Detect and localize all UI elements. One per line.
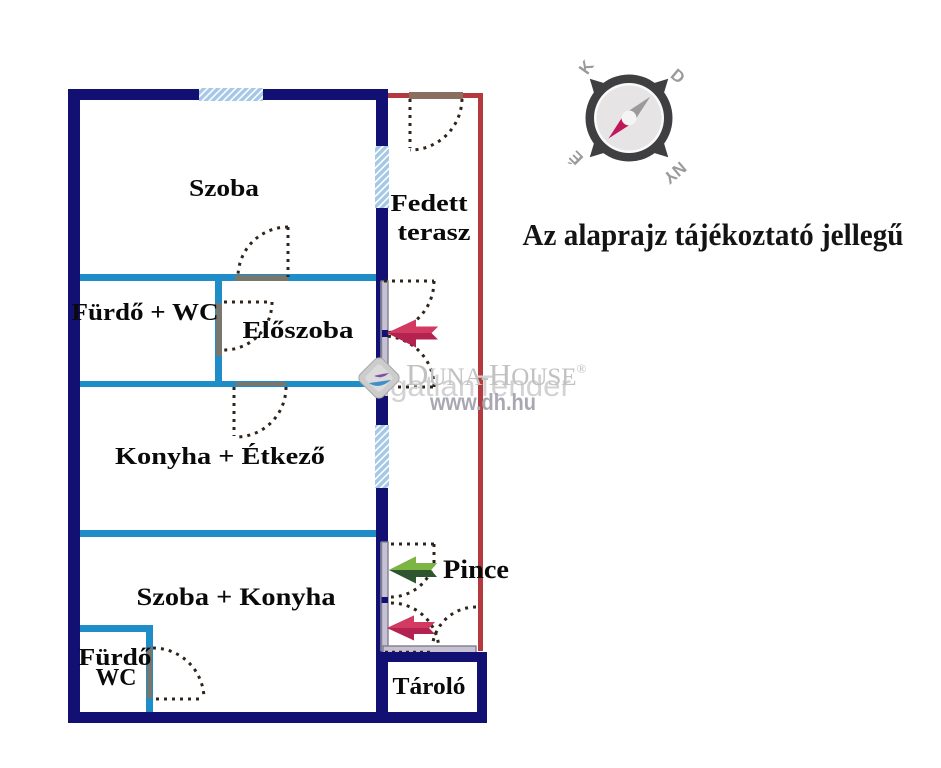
svg-text:Fedett: Fedett [391,191,468,217]
svg-text:terasz: terasz [398,220,471,246]
svg-text:WC: WC [96,665,137,691]
svg-text:Előszoba: Előszoba [243,318,354,344]
svg-text:www.dh.hu: www.dh.hu [429,389,536,415]
svg-text:Tároló: Tároló [393,674,466,700]
svg-text:Pince: Pince [443,555,509,584]
svg-text:Az alaprajz tájékoztató jelleg: Az alaprajz tájékoztató jellegű [523,217,904,252]
svg-text:Konyha + Étkező: Konyha + Étkező [115,444,325,470]
svg-text:Szoba + Konyha: Szoba + Konyha [137,584,337,611]
svg-text:Fürdő + WC: Fürdő + WC [72,300,219,326]
svg-text:Szoba: Szoba [189,175,259,202]
